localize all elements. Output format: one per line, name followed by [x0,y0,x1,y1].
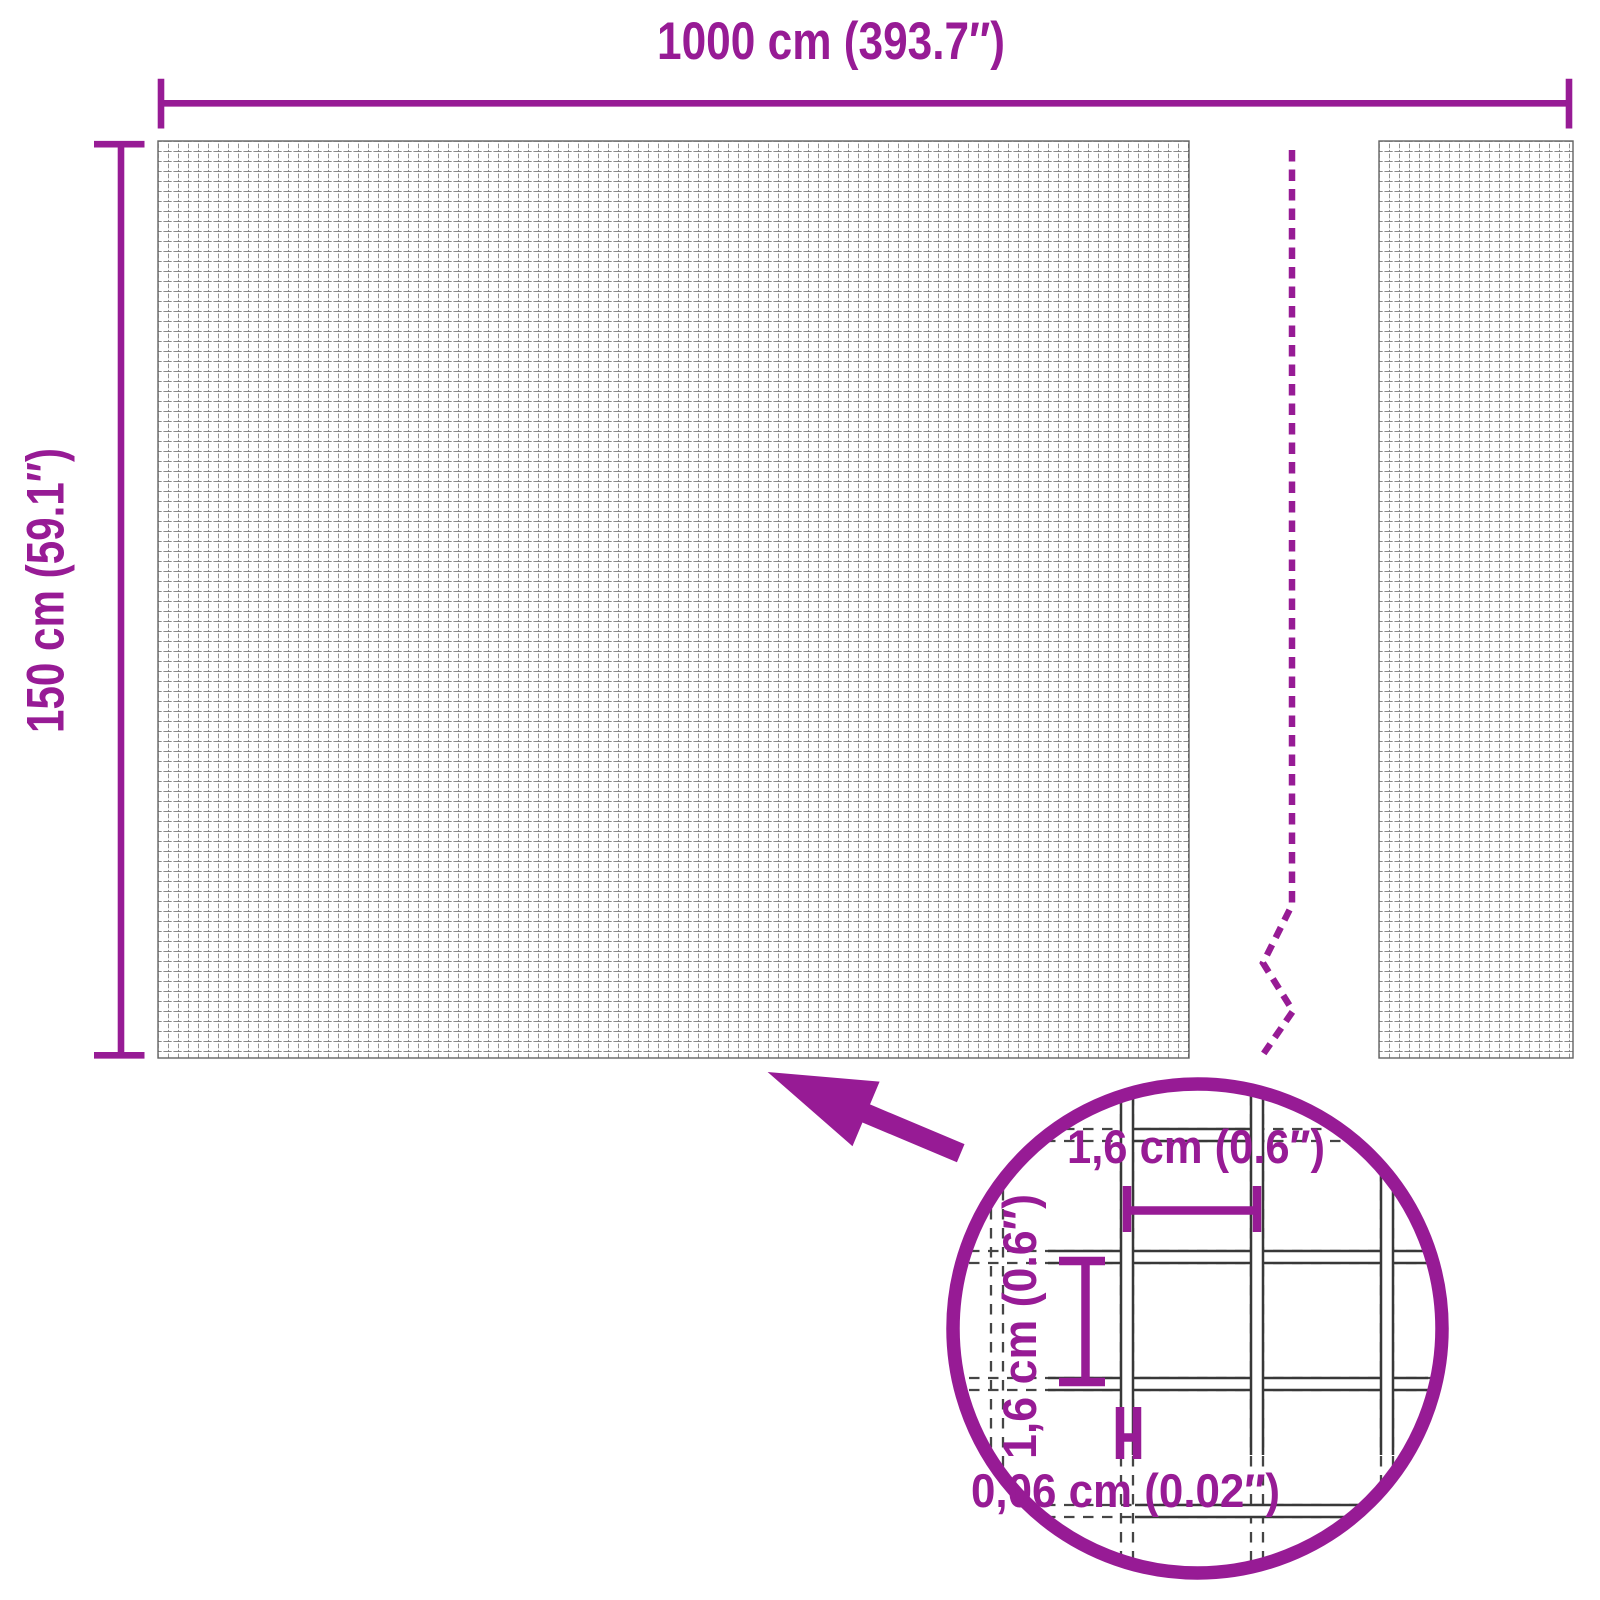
svg-text:1,6 cm (0.6″): 1,6 cm (0.6″) [993,1194,1046,1459]
svg-text:1,6 cm (0.6″): 1,6 cm (0.6″) [1067,1120,1325,1173]
svg-text:150 cm (59.1″): 150 cm (59.1″) [17,448,76,733]
svg-text:0,06 cm (0.02″): 0,06 cm (0.02″) [971,1464,1280,1517]
svg-text:1000 cm (393.7″): 1000 cm (393.7″) [657,12,1005,71]
